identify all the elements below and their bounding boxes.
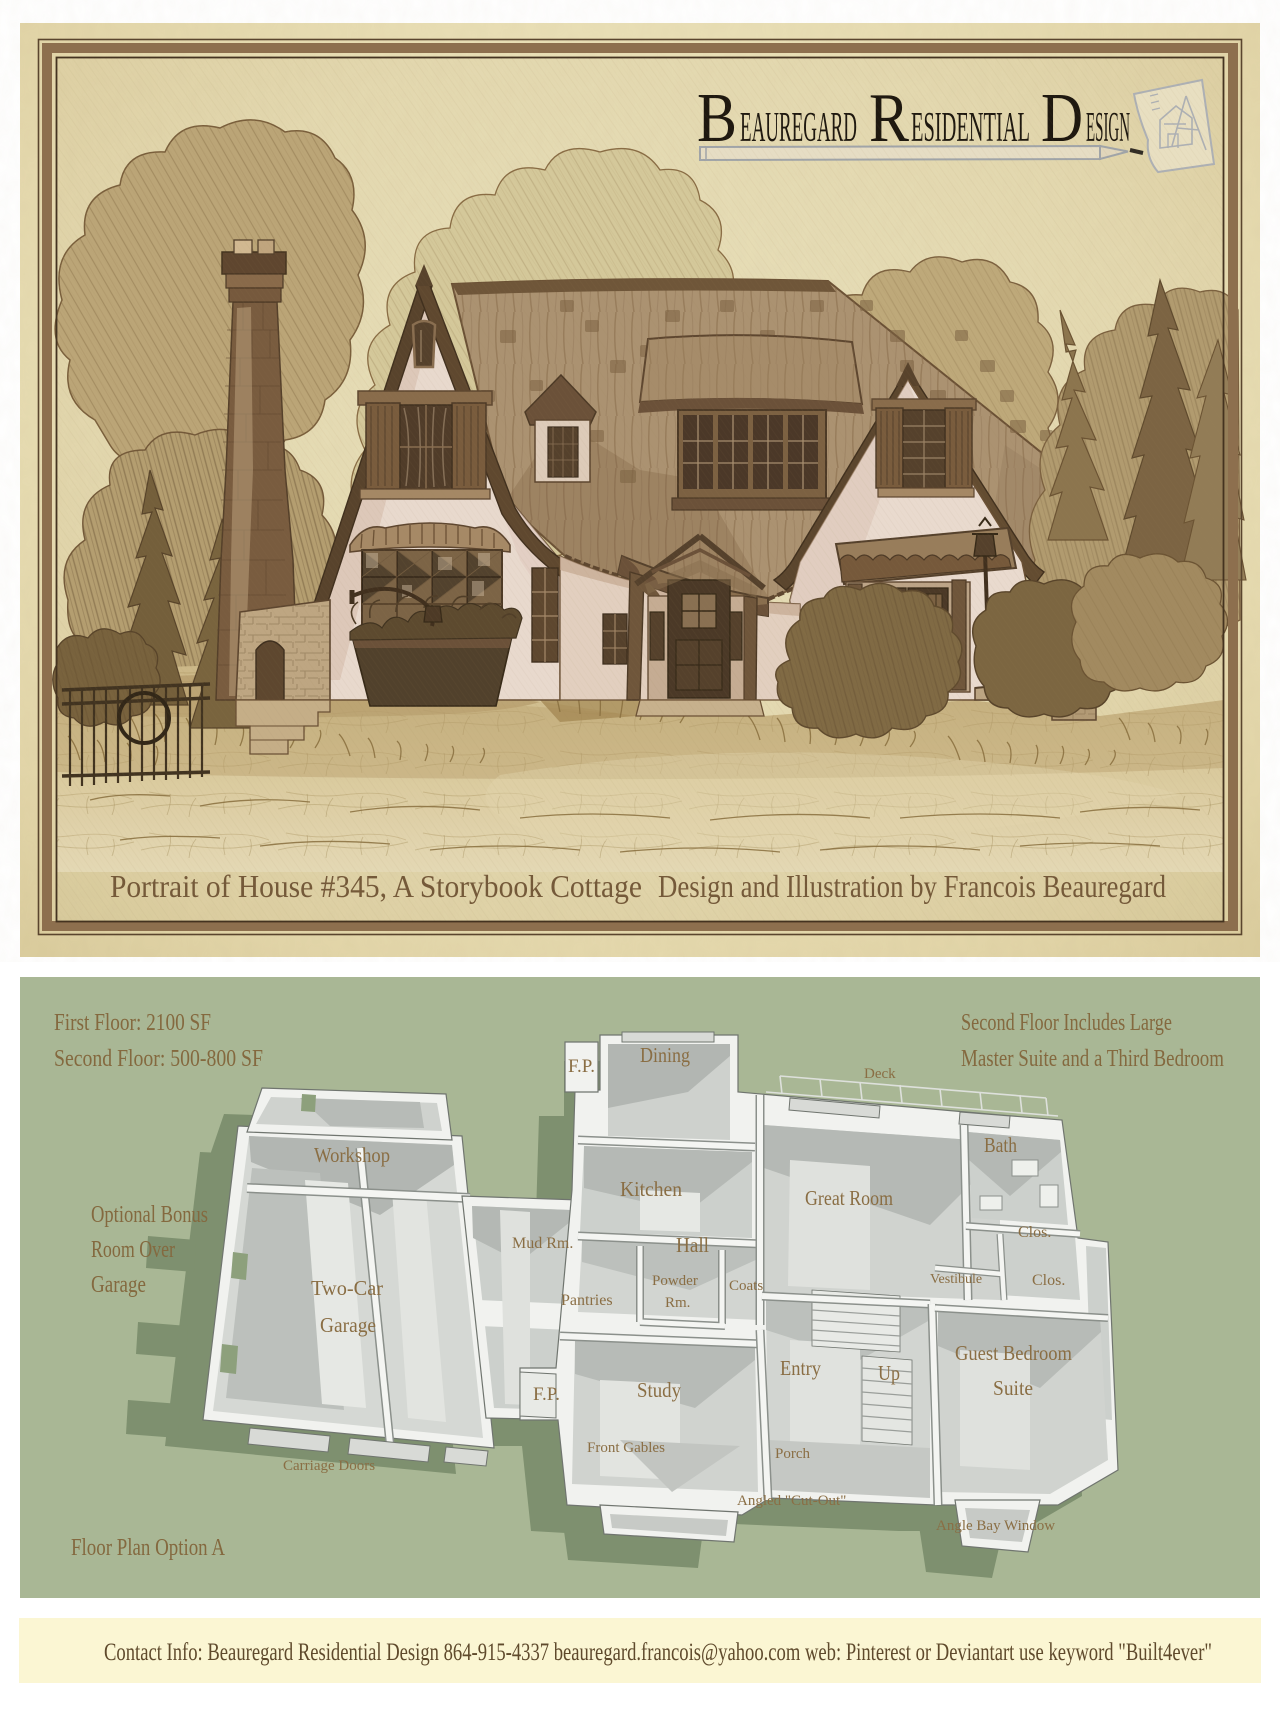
svg-text:Workshop: Workshop — [314, 1143, 390, 1167]
svg-text:F.P.: F.P. — [533, 1384, 560, 1405]
svg-text:Great Room: Great Room — [805, 1186, 893, 1210]
svg-text:Contact Info: Beauregard Resid: Contact Info: Beauregard Residential Des… — [104, 1639, 1212, 1666]
svg-text:Floor Plan Option A: Floor Plan Option A — [71, 1535, 226, 1561]
svg-text:Mud Rm.: Mud Rm. — [512, 1235, 573, 1252]
svg-text:Room Over: Room Over — [91, 1237, 175, 1263]
svg-text:Study: Study — [637, 1378, 681, 1402]
svg-text:Guest Bedroom: Guest Bedroom — [955, 1341, 1072, 1365]
svg-text:Pantries: Pantries — [561, 1292, 613, 1309]
svg-text:Garage: Garage — [91, 1272, 146, 1298]
svg-text:F.P.: F.P. — [568, 1056, 595, 1077]
svg-text:Vestibule: Vestibule — [930, 1272, 982, 1287]
svg-text:Hall: Hall — [676, 1233, 709, 1257]
svg-text:Deck: Deck — [864, 1066, 896, 1082]
svg-text:Coats: Coats — [729, 1278, 763, 1294]
svg-text:Carriage Doors: Carriage Doors — [283, 1458, 375, 1474]
svg-text:Up: Up — [878, 1361, 900, 1385]
svg-text:Garage: Garage — [320, 1313, 376, 1337]
svg-text:Second Floor: 500-800 SF: Second Floor: 500-800 SF — [54, 1046, 263, 1072]
svg-text:First Floor: 2100 SF: First Floor: 2100 SF — [54, 1010, 211, 1036]
svg-text:Second Floor Includes Large: Second Floor Includes Large — [961, 1010, 1172, 1036]
svg-text:Master Suite and a Third Bedro: Master Suite and a Third Bedroom — [961, 1046, 1224, 1072]
svg-text:Dining: Dining — [640, 1043, 690, 1067]
svg-text:Entry: Entry — [780, 1356, 821, 1380]
svg-text:Powder: Powder — [652, 1273, 698, 1289]
svg-text:Front Gables: Front Gables — [587, 1440, 665, 1456]
svg-text:Kitchen: Kitchen — [620, 1177, 682, 1201]
svg-text:Angle Bay Window: Angle Bay Window — [936, 1518, 1055, 1534]
svg-text:Angled "Cut-Out": Angled "Cut-Out" — [737, 1493, 846, 1509]
svg-text:Clos.: Clos. — [1018, 1224, 1051, 1241]
svg-text:Two-Car: Two-Car — [311, 1276, 383, 1300]
svg-text:Clos.: Clos. — [1032, 1272, 1065, 1289]
svg-text:Optional Bonus: Optional Bonus — [91, 1202, 208, 1228]
svg-text:Suite: Suite — [993, 1376, 1033, 1400]
svg-text:Porch: Porch — [775, 1446, 810, 1462]
svg-text:Bath: Bath — [984, 1133, 1017, 1157]
svg-text:Rm.: Rm. — [665, 1295, 690, 1311]
